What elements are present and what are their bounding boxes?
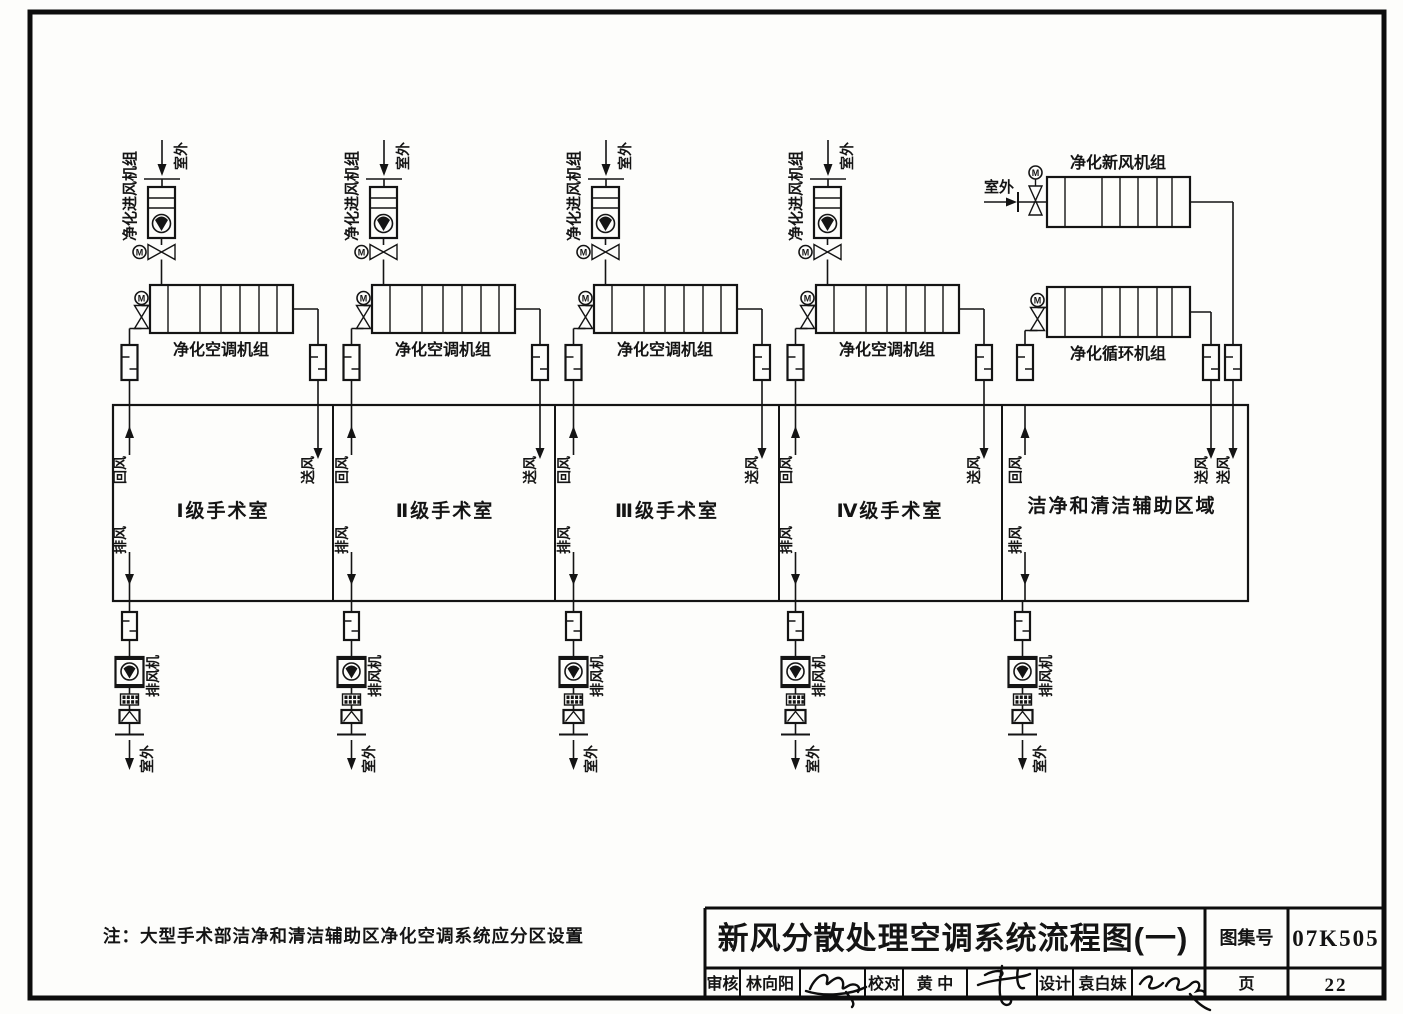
branch-operating-room-2: [334, 140, 548, 601]
up-arrow-icon: [1021, 426, 1030, 438]
silencer-ticks: [1203, 357, 1219, 369]
down-arrow-icon: [1021, 574, 1030, 585]
page-label: 页: [1238, 975, 1254, 993]
return-air-label: 回风: [1008, 456, 1024, 484]
drawing-page: 室外 净化进风机组 M 净化空调机组 送风: [0, 0, 1403, 1014]
exhaust-assembly-1: [115, 601, 161, 773]
recirc-supply-pipe: [1190, 312, 1211, 345]
supply-pipes: [1211, 405, 1233, 450]
damper-valve-icon: [1031, 308, 1045, 331]
signature-reviewer: [806, 975, 866, 1007]
exhaust-assembly-2: [337, 601, 383, 773]
silencer-ticks: [1225, 357, 1241, 369]
supply-air-label: 送风: [1216, 456, 1232, 485]
recirc-unit-box: [1047, 287, 1190, 337]
title-block: 新风分散处理空调系统流程图(一) 图集号 07K505 审核 林向阳 校对 黄 …: [705, 908, 1384, 1010]
signature-designer: [1140, 977, 1210, 1011]
room-1-label: Ⅰ级手术室: [176, 499, 269, 522]
fresh-air-unit-label: 净化新风机组: [1070, 153, 1166, 172]
supply-air-label: 送风: [1194, 456, 1210, 485]
return-pipe: [1025, 331, 1038, 346]
checker-name: 黄 中: [917, 974, 953, 993]
reviewer-name: 林向阳: [746, 974, 794, 993]
room-2-label: Ⅱ级手术室: [396, 499, 495, 522]
designer-label: 设计: [1039, 974, 1071, 993]
branch-operating-room-4: [778, 140, 992, 601]
reviewer-label: 审核: [706, 974, 738, 993]
drawing-title: 新风分散处理空调系统流程图(一): [718, 921, 1189, 956]
right-arrow-icon: [1006, 198, 1017, 207]
page-number: 22: [1325, 975, 1348, 996]
flow-diagram: 室外 净化进风机组 M 净化空调机组 送风: [0, 0, 1403, 1014]
rooms-band: Ⅰ级手术室 Ⅱ级手术室 Ⅲ级手术室 Ⅳ级手术室 洁净和清洁辅助区域: [113, 405, 1248, 601]
atlas-no-label: 图集号: [1220, 927, 1274, 948]
recirc-unit-label: 净化循环机组: [1070, 344, 1166, 363]
outdoor-label: 室外: [984, 178, 1014, 196]
room-4-label: Ⅳ级手术室: [837, 499, 944, 522]
silencer: [1203, 345, 1219, 380]
designer-name: 袁白妹: [1077, 974, 1127, 993]
recirc-unit-sections: [1065, 287, 1172, 337]
fresh-air-unit-sections: [1065, 177, 1172, 227]
branch-operating-room-3: [556, 140, 770, 601]
motor-letter: M: [1034, 296, 1042, 306]
fresh-air-unit-box: [1047, 177, 1190, 227]
silencer-ticks: [1017, 357, 1033, 369]
checker-label: 校对: [868, 974, 900, 993]
exhaust-air-label: 排风: [1008, 526, 1024, 554]
room-5-label: 洁净和清洁辅助区域: [1027, 494, 1216, 517]
fresh-air-recirc-section: 室外 M 净化新风机组 净化循环机组 M 回风: [984, 153, 1241, 601]
drawing-note: 注：大型手术部洁净和清洁辅助区净化空调系统应分区设置: [103, 926, 584, 946]
motor-letter: M: [1032, 168, 1040, 178]
silencer: [1017, 345, 1033, 380]
exhaust-assembly-3: [559, 601, 605, 773]
exhaust-assembly-5: [1008, 601, 1054, 773]
room-3-label: Ⅲ级手术室: [615, 499, 719, 522]
damper-valve-icon: [1029, 179, 1042, 215]
silencer: [1225, 345, 1241, 380]
branch-operating-room-1: [112, 140, 326, 601]
exhaust-assembly-4: [781, 601, 827, 773]
atlas-no-value: 07K505: [1292, 926, 1379, 951]
